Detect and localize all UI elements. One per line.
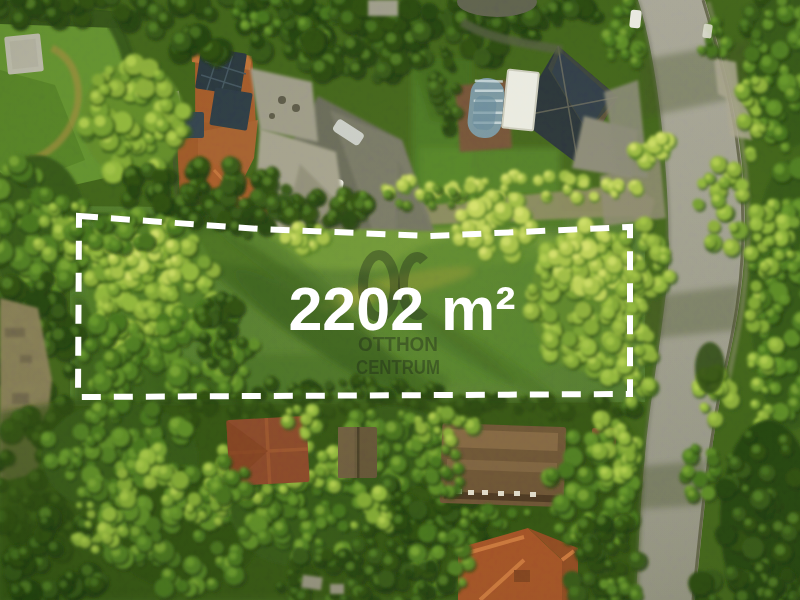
svg-text:CENTRUM: CENTRUM [356, 355, 440, 378]
svg-text:2202 m²: 2202 m² [288, 275, 515, 343]
